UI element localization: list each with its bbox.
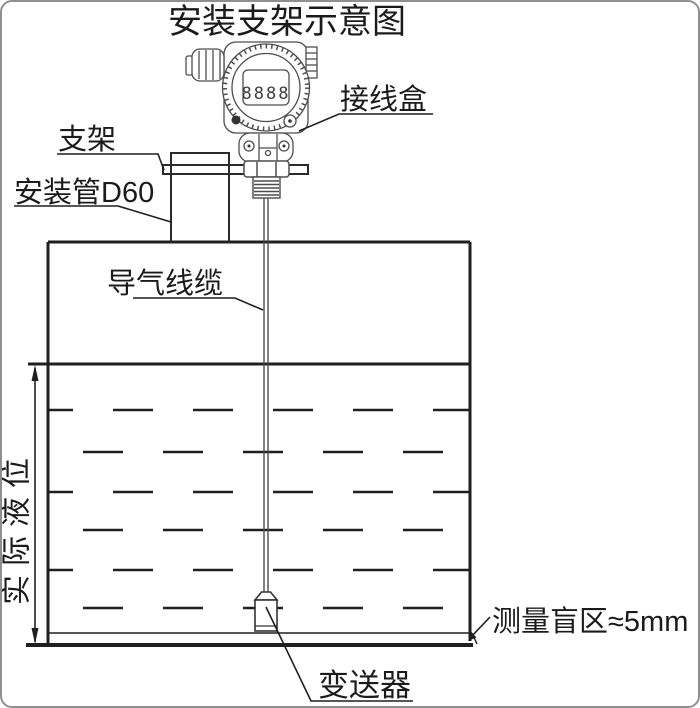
cable-gland-icon <box>186 49 224 81</box>
arrow-up-icon <box>32 365 39 381</box>
leader-junction-box <box>299 114 433 131</box>
mounting-nut <box>244 161 289 177</box>
threaded-stub <box>253 177 280 198</box>
liquid-dashes <box>48 410 470 608</box>
bracket-label: 支架 <box>58 123 116 156</box>
probe-neck <box>255 592 277 600</box>
page-title: 安装支架示意图 <box>168 3 406 41</box>
mounting-pipe-drawing <box>171 153 229 243</box>
actual-level-label: 实际液位 <box>1 449 34 605</box>
tank <box>26 242 477 645</box>
air-cable-label: 导气线缆 <box>107 267 223 300</box>
arrow-down-icon <box>32 628 39 644</box>
lcd-display: 8888 <box>242 84 291 104</box>
bolt-left-icon <box>232 116 241 125</box>
mounting-pipe-label: 安装管D60 <box>14 176 154 209</box>
leader-blind-zone <box>471 617 490 637</box>
air-cable-drawing <box>264 198 268 593</box>
blind-zone-label: 测量盲区≈5mm <box>492 605 688 638</box>
diagram-page: 8888 <box>0 0 700 708</box>
probe-drawing <box>255 592 277 631</box>
bolt-right-dot <box>288 119 292 123</box>
transmitter-label: 变送器 <box>318 668 411 703</box>
leader-bracket <box>57 154 164 170</box>
junction-box-label: 接线盒 <box>340 83 427 116</box>
process-adapter <box>239 133 293 162</box>
level-dimension: 实际液位 <box>1 365 39 644</box>
installation-diagram: 8888 <box>0 0 700 708</box>
